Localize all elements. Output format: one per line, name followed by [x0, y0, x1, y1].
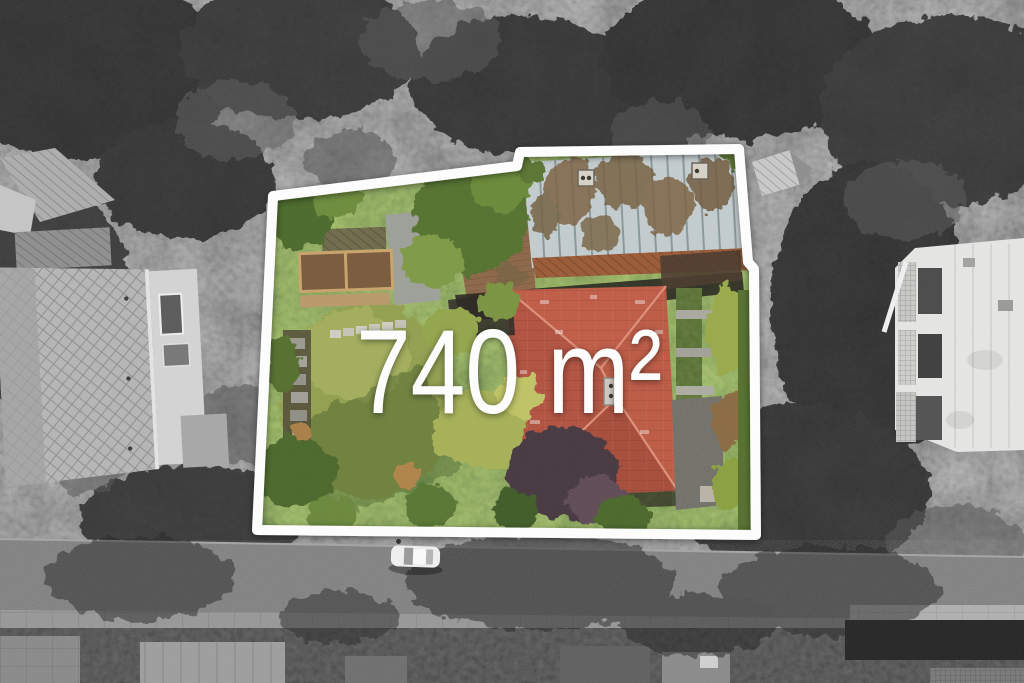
aerial-photo: 740 m² [0, 0, 1024, 683]
photo-grain-overlay [0, 0, 1024, 683]
screenshot-root: 740 m² [0, 0, 1024, 683]
